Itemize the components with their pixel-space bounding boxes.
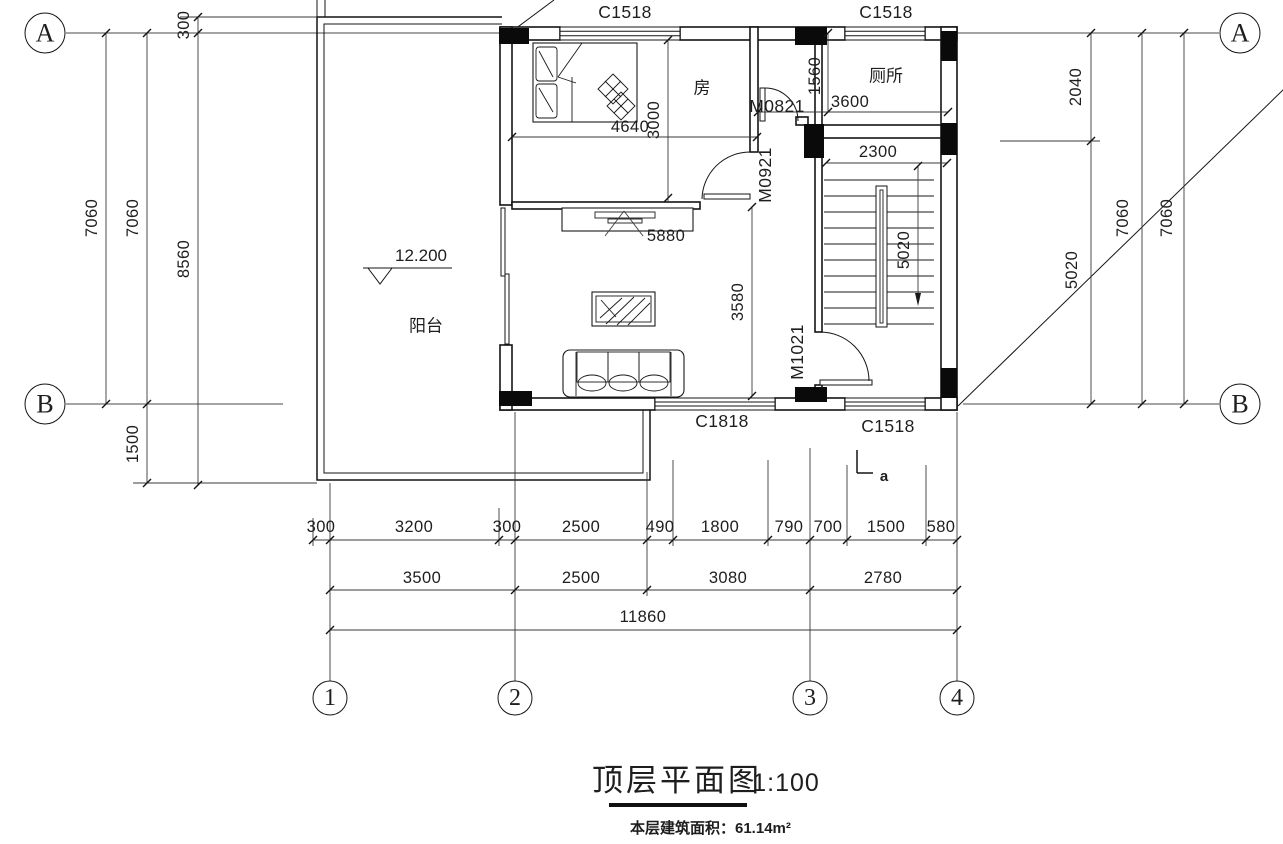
dim-b1-1500: 1500	[867, 518, 905, 536]
dim-3600: 3600	[831, 93, 869, 111]
floor-plan-drawing: 12.200 a	[0, 0, 1283, 844]
svg-text:A: A	[1231, 19, 1250, 48]
room-label-toilet: 厕所	[869, 67, 903, 86]
bed	[533, 43, 637, 122]
dim-left-7060-2: 7060	[124, 199, 142, 237]
window-label-c1518-bottom: C1518	[861, 416, 915, 436]
door-label-m0921: M0921	[755, 147, 775, 203]
dim-left-1500: 1500	[124, 425, 142, 463]
dim-b1-700: 700	[814, 518, 843, 536]
dim-b1-300: 300	[307, 518, 336, 536]
dim-3580: 3580	[729, 283, 747, 321]
axis-bubble-b-left: B	[25, 384, 65, 424]
section-marker: a	[857, 450, 889, 485]
dim-b1-1800: 1800	[701, 518, 739, 536]
dim-b1-2500: 2500	[562, 518, 600, 536]
dim-b2-3080: 3080	[709, 569, 747, 587]
drawing-title: 顶层平面图	[592, 763, 762, 798]
svg-text:3: 3	[804, 685, 816, 711]
room-label-balcony: 阳台	[409, 317, 443, 336]
svg-text:A: A	[36, 19, 55, 48]
svg-text:2: 2	[509, 685, 521, 711]
dim-right-2040: 2040	[1067, 68, 1085, 106]
stair-direction-arrow	[915, 293, 921, 306]
coffee-table	[592, 292, 655, 326]
svg-text:B: B	[1231, 390, 1248, 419]
dim-b1-3200: 3200	[395, 518, 433, 536]
dim-b2-2780: 2780	[864, 569, 902, 587]
level-triangle-icon	[368, 268, 392, 284]
furniture	[533, 43, 693, 397]
svg-text:B: B	[36, 390, 53, 419]
axis-bubble-1: 1	[313, 681, 347, 715]
axis-bubble-2: 2	[498, 681, 532, 715]
dim-5880: 5880	[647, 227, 685, 245]
axis-bubble-3: 3	[793, 681, 827, 715]
dim-b1-790: 790	[775, 518, 804, 536]
dim-2300: 2300	[859, 143, 897, 161]
axis-bubble-b-right: B	[1220, 384, 1260, 424]
sofa	[563, 350, 684, 397]
window-c1518-bottom	[845, 398, 925, 410]
dim-right-5020: 5020	[1063, 251, 1081, 289]
window-label-c1518-top-left: C1518	[598, 2, 652, 22]
dim-3000: 3000	[645, 101, 663, 139]
svg-text:4: 4	[951, 685, 963, 711]
title-block: 顶层平面图 1:100 本层建筑面积：61.14m²	[592, 763, 820, 837]
dim-left-7060-1: 7060	[83, 199, 101, 237]
dim-right-7060-1: 7060	[1114, 199, 1132, 237]
level-value: 12.200	[395, 246, 447, 265]
dim-left-300: 300	[175, 11, 193, 40]
dim-4640: 4640	[611, 118, 649, 136]
floor-plan-sheet: 12.200 a	[0, 0, 1283, 844]
window-c1818-bottom	[655, 398, 775, 410]
dim-stair-5020: 5020	[895, 231, 913, 269]
dim-1560: 1560	[806, 57, 824, 95]
balcony-sliding-door	[501, 208, 509, 344]
door-m0921	[702, 152, 750, 199]
drawing-scale: 1:100	[752, 769, 820, 797]
title-underline	[609, 803, 747, 807]
door-m1021	[820, 332, 872, 385]
window-label-c1518-top-right: C1518	[859, 2, 913, 22]
area-note: 本层建筑面积：61.14m²	[630, 819, 791, 837]
dim-b1-300b: 300	[493, 518, 522, 536]
level-marker: 12.200	[363, 246, 452, 284]
dim-total-11860: 11860	[620, 608, 667, 626]
axis-bubble-4: 4	[940, 681, 974, 715]
dim-b2-2500: 2500	[562, 569, 600, 587]
door-label-m0821: M0821	[749, 96, 805, 116]
room-label-bedroom: 房	[694, 79, 711, 98]
dim-left-8560: 8560	[175, 240, 193, 278]
window-label-c1818-bottom: C1818	[695, 411, 749, 431]
window-c1518-top-left	[560, 27, 680, 40]
door-label-m1021: M1021	[787, 324, 807, 380]
dim-b2-3500: 3500	[403, 569, 441, 587]
staircase	[824, 166, 934, 327]
section-letter: a	[880, 468, 889, 485]
dim-right-7060-2: 7060	[1158, 199, 1176, 237]
dim-b1-490: 490	[646, 518, 675, 536]
stair-railing	[876, 186, 887, 327]
dim-b1-580: 580	[927, 518, 956, 536]
window-c1518-top-right	[845, 27, 925, 40]
svg-text:1: 1	[324, 685, 336, 711]
axis-bubble-a-left: A	[25, 13, 65, 53]
axis-bubble-a-right: A	[1220, 13, 1260, 53]
